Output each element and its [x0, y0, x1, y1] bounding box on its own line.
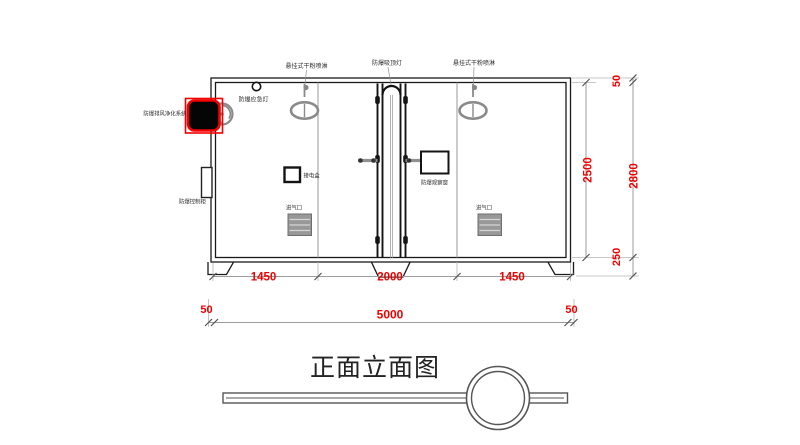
title-circle-inner	[472, 372, 525, 425]
dimension-row-segments: 1450 2000 1450	[210, 262, 575, 284]
drawing-title: 正面立面图	[310, 354, 440, 382]
junction-box-label: 接电盒	[304, 172, 321, 180]
purification-unit-box	[188, 101, 220, 131]
dim-50-top: 50	[611, 75, 623, 87]
observation-window-label: 防爆观察窗	[421, 179, 448, 187]
dim-50-bottom-right: 50	[565, 304, 577, 316]
air-inlet-right-icon	[478, 214, 502, 236]
sprinkler-right-label: 悬挂式干粉喷淋	[453, 59, 495, 67]
exhaust-fan-unit	[186, 99, 233, 134]
sprinkler-left	[291, 84, 318, 119]
door-hinges	[375, 96, 408, 244]
junction-box-icon	[285, 168, 301, 183]
dim-1450-left: 1450	[251, 272, 277, 284]
observation-window-icon	[421, 152, 449, 174]
dim-250-bottom: 250	[611, 248, 623, 266]
exhaust-system-label: 防爆排风净化系统	[143, 110, 187, 118]
control-cabinet-label: 防爆控制柜	[179, 198, 207, 206]
dim-5000-total: 5000	[377, 308, 404, 322]
leader-sprinkler-right	[474, 67, 475, 84]
dim-2500-inner-height: 2500	[583, 157, 595, 183]
dim-1450-right: 1450	[499, 272, 525, 284]
double-door	[358, 84, 426, 258]
dim-2000-center: 2000	[377, 272, 403, 284]
dimension-column-right: 2500 50 2800 250	[572, 75, 641, 280]
control-cabinet-icon	[202, 168, 213, 198]
emergency-light-label: 防爆应急灯	[238, 96, 268, 104]
air-inlet-left-icon	[288, 214, 312, 236]
sprinkler-left-label: 悬挂式干粉喷淋	[285, 62, 327, 70]
dim-2800-total-height: 2800	[629, 163, 641, 189]
air-inlet-right-label: 进气口	[476, 204, 492, 212]
emergency-light-icon	[252, 82, 260, 90]
ceiling-light-label: 防爆吸顶灯	[372, 59, 402, 67]
dimension-row-total: 50 5000 50	[200, 299, 577, 327]
dim-50-bottom-left: 50	[200, 304, 212, 316]
elevation-drawing: 悬挂式干粉喷淋 防爆吸顶灯 悬挂式干粉喷淋 防爆应急灯 防爆排风净化系统 防爆控…	[0, 0, 800, 445]
sprinkler-right	[460, 84, 487, 119]
air-inlet-left-label: 进气口	[286, 204, 302, 212]
door-top-arc	[383, 86, 401, 95]
